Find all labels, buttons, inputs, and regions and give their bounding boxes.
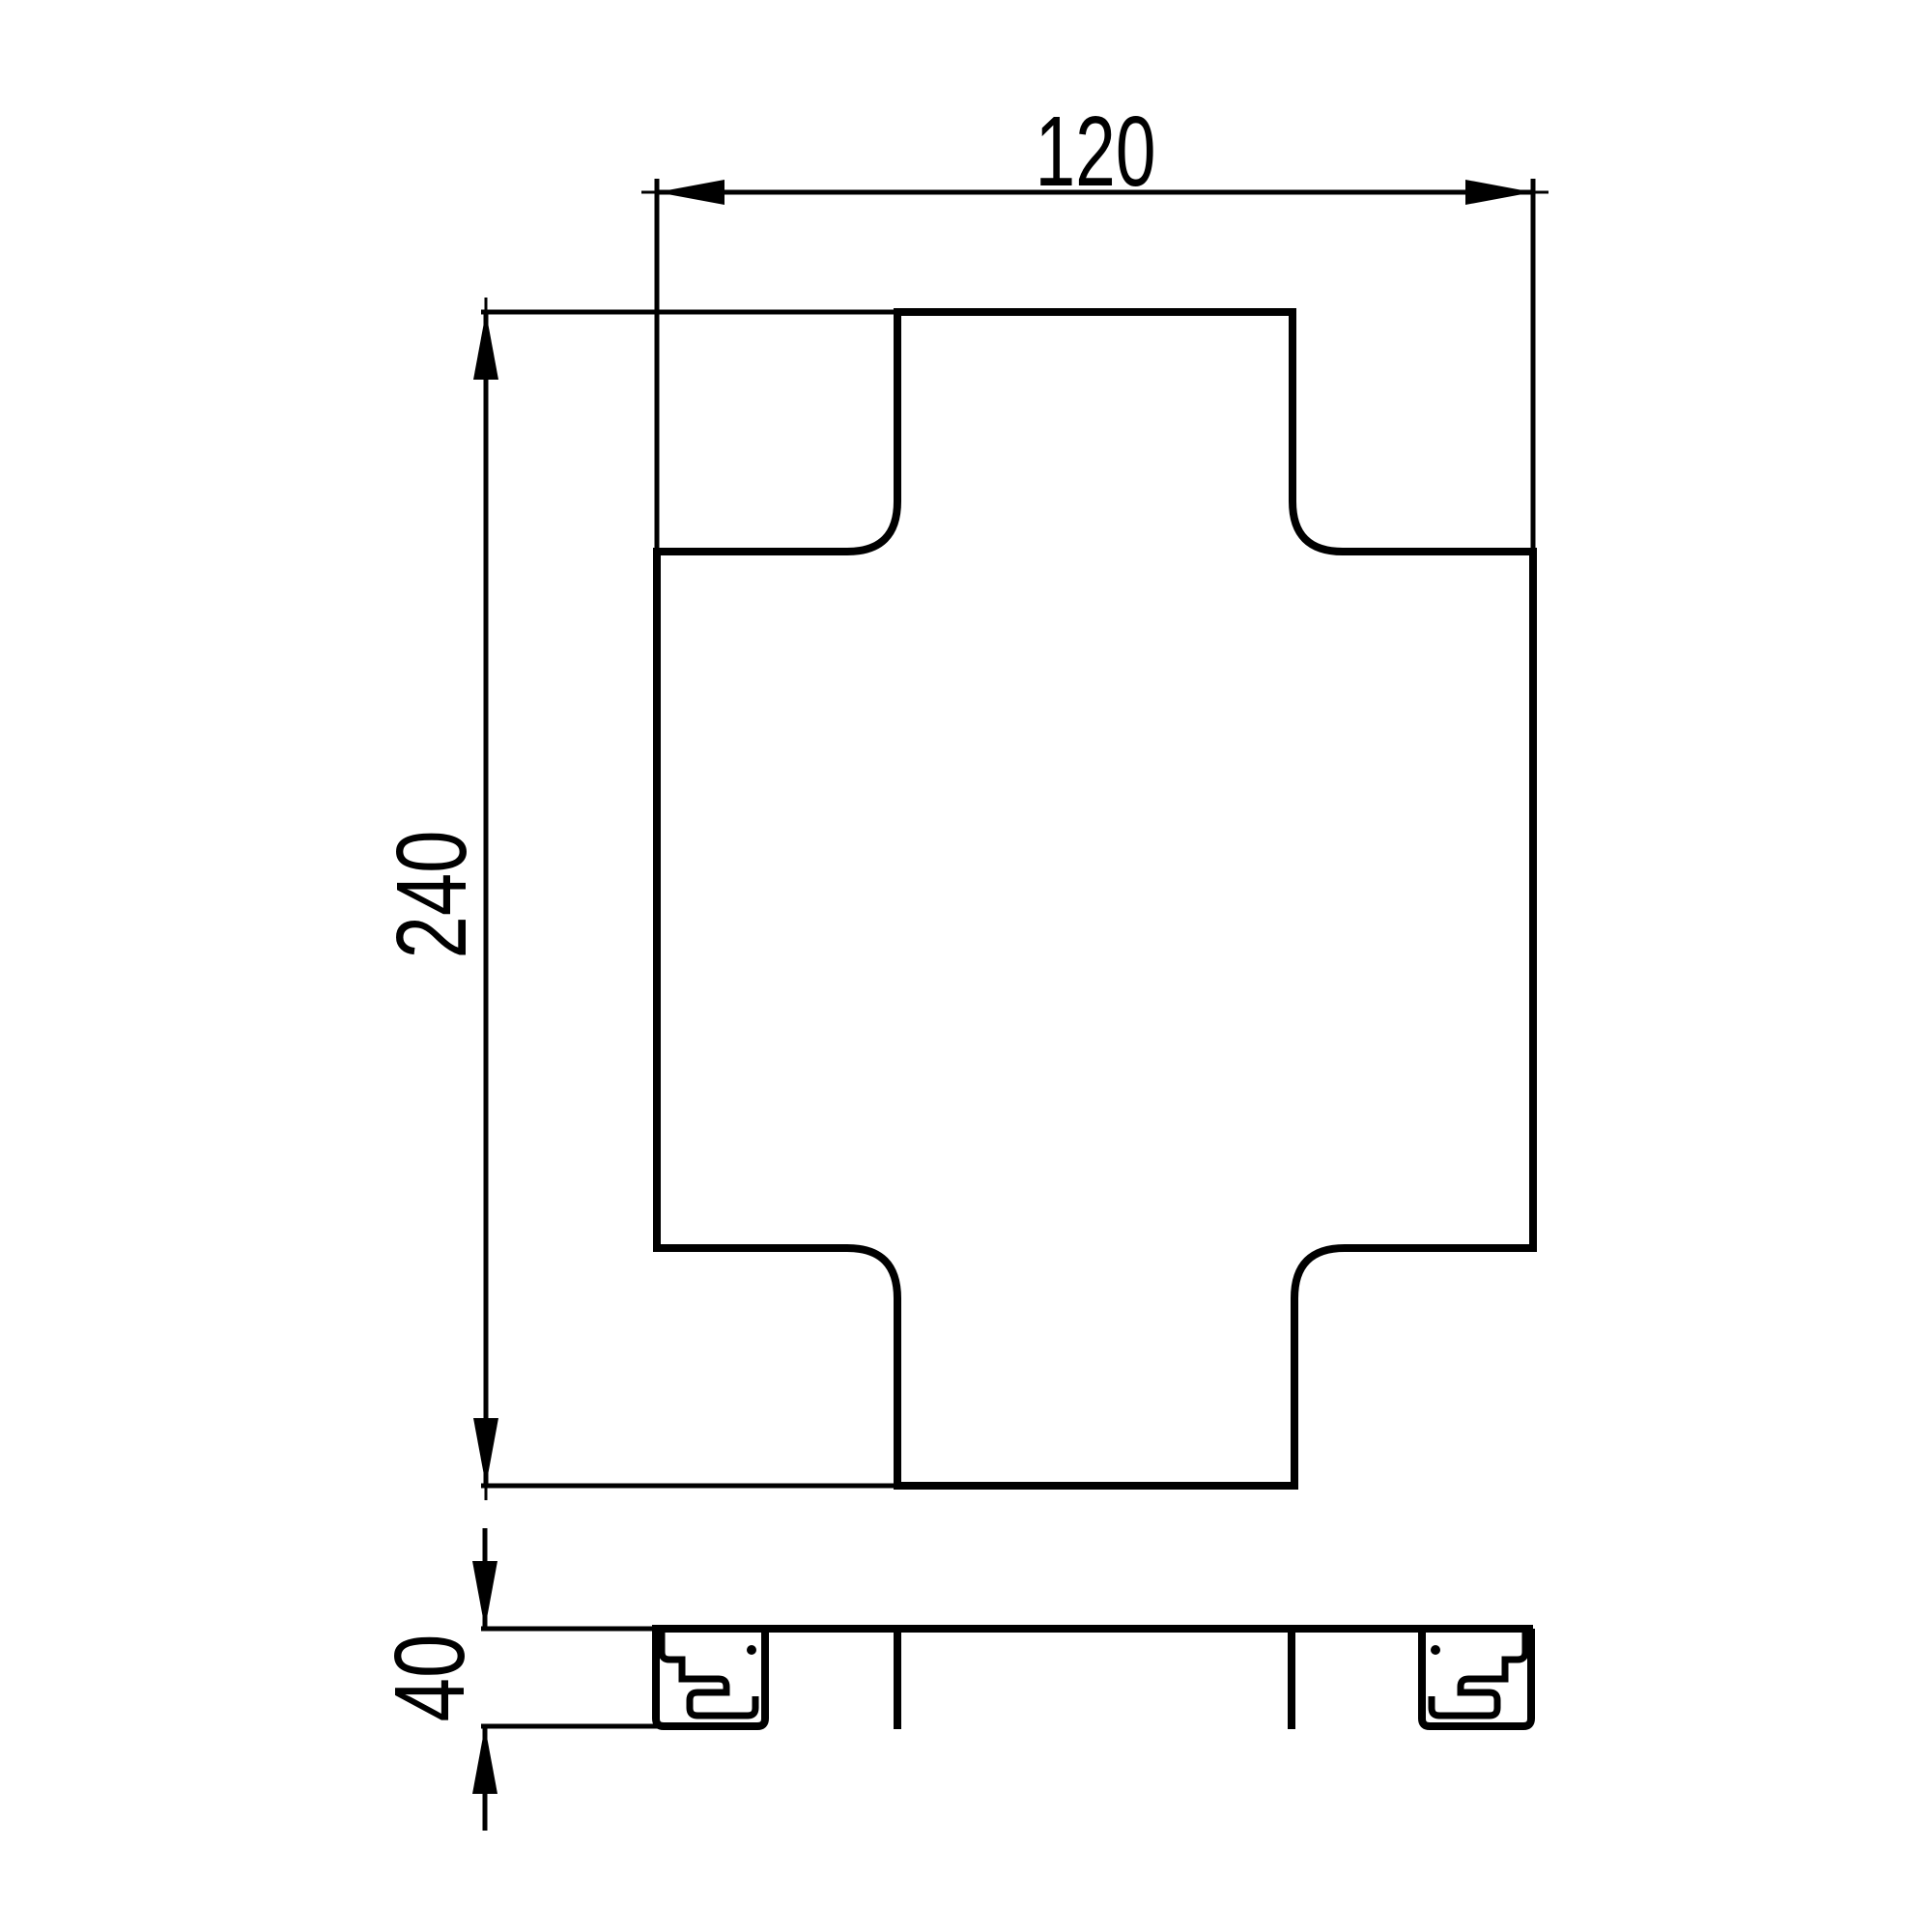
cad-drawing: 120 240 40 bbox=[0, 0, 1932, 1932]
side-right-hole-dot bbox=[1431, 1645, 1440, 1655]
plan-view-outline bbox=[657, 312, 1533, 1486]
side-left-hole-dot bbox=[747, 1645, 756, 1655]
dim-height-arrow-bottom bbox=[473, 1418, 498, 1486]
drawing-canvas: 120 240 40 bbox=[0, 0, 1932, 1932]
dim-thickness-arrow-down bbox=[472, 1561, 497, 1629]
side-view bbox=[652, 1629, 1533, 1729]
dim-height bbox=[473, 298, 901, 1500]
dim-height-arrow-top bbox=[473, 312, 498, 380]
dim-width-label: 120 bbox=[1036, 96, 1156, 207]
dim-thickness-arrow-up bbox=[472, 1726, 497, 1794]
dim-thickness-label: 40 bbox=[374, 1634, 485, 1722]
dim-width-arrow-right bbox=[1465, 180, 1533, 205]
side-left-clip bbox=[662, 1629, 755, 1716]
side-right-clip bbox=[1432, 1629, 1525, 1716]
plan-view bbox=[657, 312, 1533, 1486]
dim-height-label: 240 bbox=[376, 831, 487, 959]
dim-width-arrow-left bbox=[657, 180, 724, 205]
dim-width bbox=[641, 179, 1548, 552]
